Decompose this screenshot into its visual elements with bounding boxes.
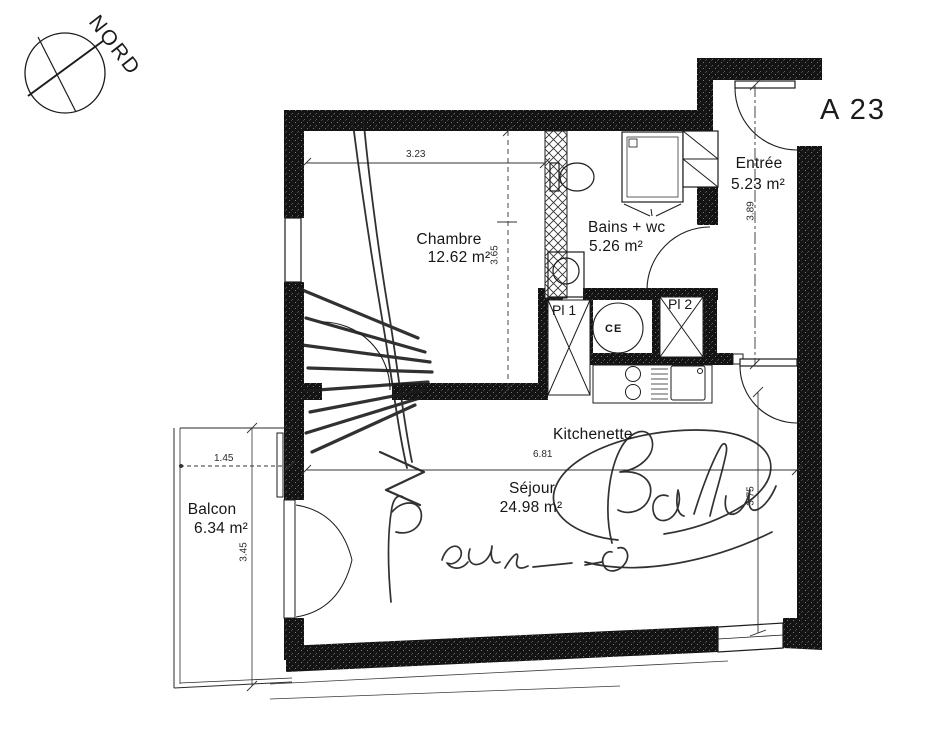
room-label-kitchenette: Kitchenette bbox=[553, 427, 633, 443]
balcony-outline bbox=[174, 428, 292, 688]
room-label-balcon: Balcon bbox=[188, 502, 237, 518]
dim-balcon-width: 1.45 bbox=[214, 454, 233, 464]
room-area-bains: 5.26 m² bbox=[589, 239, 643, 255]
room-label-sejour: Séjour bbox=[509, 481, 555, 497]
compass-circle bbox=[25, 33, 105, 113]
compass: NORD bbox=[25, 11, 145, 113]
unit-number-label: A 23 bbox=[820, 96, 886, 125]
kitchenette-counter bbox=[593, 365, 712, 403]
shower-drain bbox=[629, 139, 637, 147]
pen-scribble bbox=[300, 114, 432, 505]
faucet bbox=[698, 369, 703, 374]
burner bbox=[626, 367, 641, 382]
water-heater-label: CE bbox=[605, 324, 622, 335]
dim-entree-depth: 3.89 bbox=[747, 201, 757, 220]
closet-label-pl2: Pl 2 bbox=[668, 297, 692, 311]
room-label-chambre: Chambre bbox=[416, 232, 481, 248]
dim-balcon-depth: 3.45 bbox=[240, 542, 250, 561]
dim-sejour-width: 6.81 bbox=[533, 450, 552, 460]
room-area-sejour: 24.98 m² bbox=[500, 500, 563, 516]
shower bbox=[622, 132, 683, 202]
floor-plan-page: NORD bbox=[0, 0, 943, 736]
duct-shaft bbox=[683, 131, 718, 187]
closet-label-pl1: Pl 1 bbox=[552, 303, 576, 317]
room-area-entree: 5.23 m² bbox=[731, 177, 785, 193]
dim-sejour-depth: 3.75 bbox=[747, 486, 757, 505]
compass-needle bbox=[28, 41, 103, 96]
room-label-entree: Entrée bbox=[736, 156, 783, 172]
burner bbox=[626, 385, 641, 400]
pen-signature-right bbox=[553, 430, 776, 568]
sink bbox=[671, 366, 705, 400]
floor-plan-drawing: NORD bbox=[0, 0, 943, 736]
dim-chambre-depth: 3.65 bbox=[491, 245, 501, 264]
room-area-chambre: 12.62 m² bbox=[428, 250, 491, 266]
room-area-balcon: 6.34 m² bbox=[194, 521, 248, 537]
room-label-bains: Bains + wc bbox=[588, 220, 665, 236]
dim-chambre-width: 3.23 bbox=[406, 150, 425, 160]
